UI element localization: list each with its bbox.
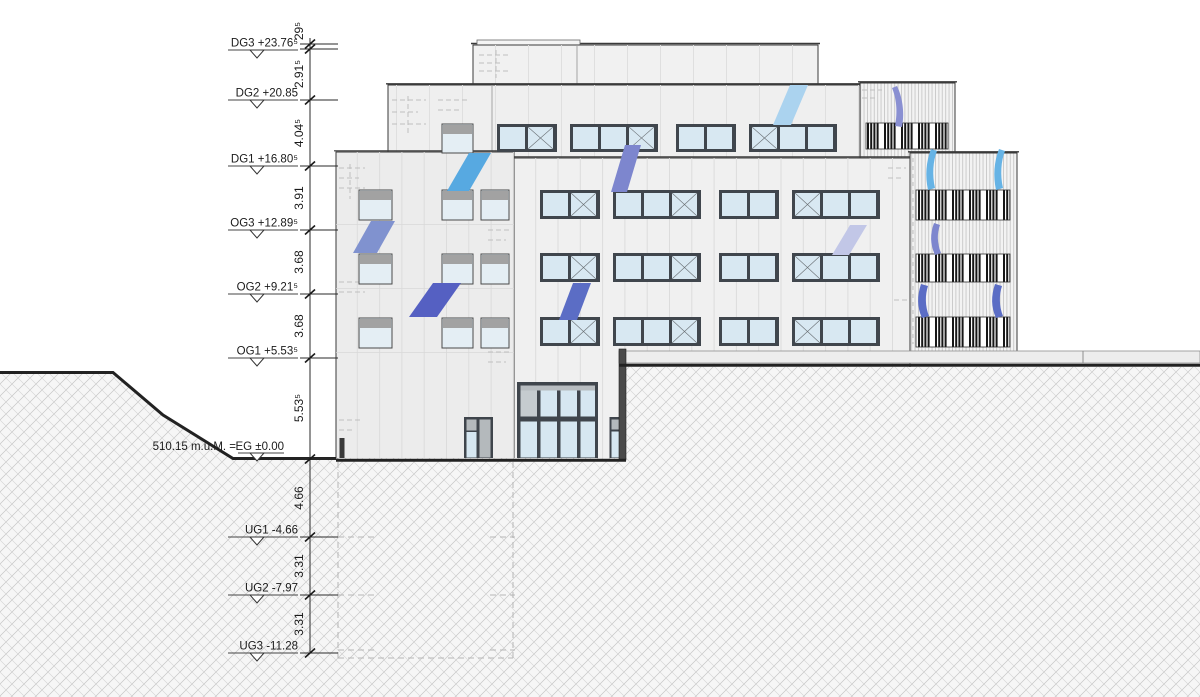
entrance-glass — [561, 422, 578, 458]
dim-label-9: 3.31 — [292, 612, 306, 636]
entrance-glass — [581, 422, 596, 458]
window-pane — [722, 193, 747, 216]
entrance-door — [464, 417, 493, 460]
window-header — [443, 125, 472, 134]
section-drawing: 29⁵ 2.91⁵ 4.04⁵ 3.91 3.68 3.68 5.53⁵ 4.6… — [0, 0, 1200, 697]
dim-label-5: 3.68 — [292, 314, 306, 338]
window-pane — [750, 256, 775, 279]
louver-band — [916, 254, 1010, 282]
window-header — [360, 191, 391, 200]
louver-band — [916, 190, 1010, 220]
level-triangle-icon — [250, 166, 264, 174]
window-pane — [823, 256, 848, 279]
dim-label-8: 3.31 — [292, 554, 306, 578]
dim-label-3: 3.91 — [292, 186, 306, 210]
window-header — [443, 191, 472, 200]
window-pane — [601, 127, 626, 149]
window-pane — [616, 193, 641, 216]
window-pane — [500, 127, 525, 149]
window-pane — [616, 320, 641, 343]
level-label-dg3: DG3 +23.76⁵ — [231, 38, 298, 50]
level-marker-dg2: DG2 +20.85 — [228, 88, 298, 109]
roof-band-face — [619, 351, 1200, 363]
dim-label-2: 4.04⁵ — [292, 119, 306, 147]
window-pane — [573, 127, 598, 149]
door-panel — [612, 420, 620, 430]
elevation-canvas: 29⁵ 2.91⁵ 4.04⁵ 3.91 3.68 3.68 5.53⁵ 4.6… — [0, 0, 1200, 697]
level-marker-og2: OG2 +9.21⁵ — [228, 282, 298, 303]
roof-upstand — [477, 40, 580, 45]
dim-label-1: 2.91⁵ — [292, 60, 306, 88]
door-glass — [467, 432, 477, 458]
window-pane — [644, 256, 669, 279]
window-pane — [679, 127, 704, 149]
window-pane — [750, 320, 775, 343]
entrance-glass — [521, 422, 538, 458]
level-label-og3: OG3 +12.89⁵ — [230, 218, 298, 230]
window-pane — [780, 127, 805, 149]
level-label-dg1: DG1 +16.80⁵ — [231, 154, 298, 166]
dim-label-4: 3.68 — [292, 250, 306, 274]
entrance-glazing — [517, 382, 598, 460]
window-pane — [722, 256, 747, 279]
window-header — [443, 319, 472, 328]
dim-label-6: 5.53⁵ — [292, 394, 306, 422]
window-pane — [851, 320, 876, 343]
window-pane — [543, 193, 568, 216]
window-pane — [851, 193, 876, 216]
level-triangle-icon — [250, 230, 264, 238]
level-label-ug3: UG3 -11.28 — [239, 641, 298, 653]
level-label-dg2: DG2 +20.85 — [236, 88, 298, 100]
level-label-eg: EG ±0.00 — [235, 441, 284, 453]
level-triangle-icon — [250, 50, 264, 58]
roof-band — [619, 351, 1200, 363]
window-header — [482, 319, 508, 328]
window-pane — [616, 256, 641, 279]
window-header — [360, 255, 391, 264]
window-pane — [707, 127, 732, 149]
entrance-glass — [541, 422, 558, 458]
level-triangle-icon — [250, 358, 264, 366]
dim-label-7: 4.66 — [292, 486, 306, 510]
entrance-fascia — [521, 386, 596, 391]
window-pane — [808, 127, 833, 149]
window-pane — [543, 256, 568, 279]
level-label-ug2: UG2 -7.97 — [245, 583, 298, 595]
door-panel — [480, 420, 491, 458]
ground-elevation-note: 510.15 m.ü.M. = — [153, 441, 237, 453]
level-triangle-icon — [250, 294, 264, 302]
window-header — [360, 319, 391, 328]
level-marker-dg1: DG1 +16.80⁵ — [228, 154, 298, 175]
louver-band — [866, 123, 948, 149]
level-label-og1: OG1 +5.53⁵ — [237, 346, 299, 358]
window-pane — [750, 193, 775, 216]
window-pane — [851, 256, 876, 279]
level-label-ug1: UG1 -4.66 — [245, 525, 298, 537]
door-glass — [612, 432, 620, 458]
level-triangle-icon — [250, 100, 264, 108]
window-pane — [823, 320, 848, 343]
window-pane — [644, 320, 669, 343]
louver-band — [916, 317, 1010, 347]
level-label-og2: OG2 +9.21⁵ — [237, 282, 299, 294]
level-marker-og1: OG1 +5.53⁵ — [228, 346, 298, 367]
window-pane — [543, 320, 568, 343]
window-header — [443, 255, 472, 264]
window-pane — [823, 193, 848, 216]
window-pane — [644, 193, 669, 216]
window-header — [482, 255, 508, 264]
window-pane — [722, 320, 747, 343]
level-marker-dg3: DG3 +23.76⁵ — [228, 38, 298, 59]
facade-post — [340, 438, 345, 460]
door-panel — [467, 420, 477, 431]
window-header — [482, 191, 508, 200]
level-marker-og3: OG3 +12.89⁵ — [228, 218, 298, 239]
